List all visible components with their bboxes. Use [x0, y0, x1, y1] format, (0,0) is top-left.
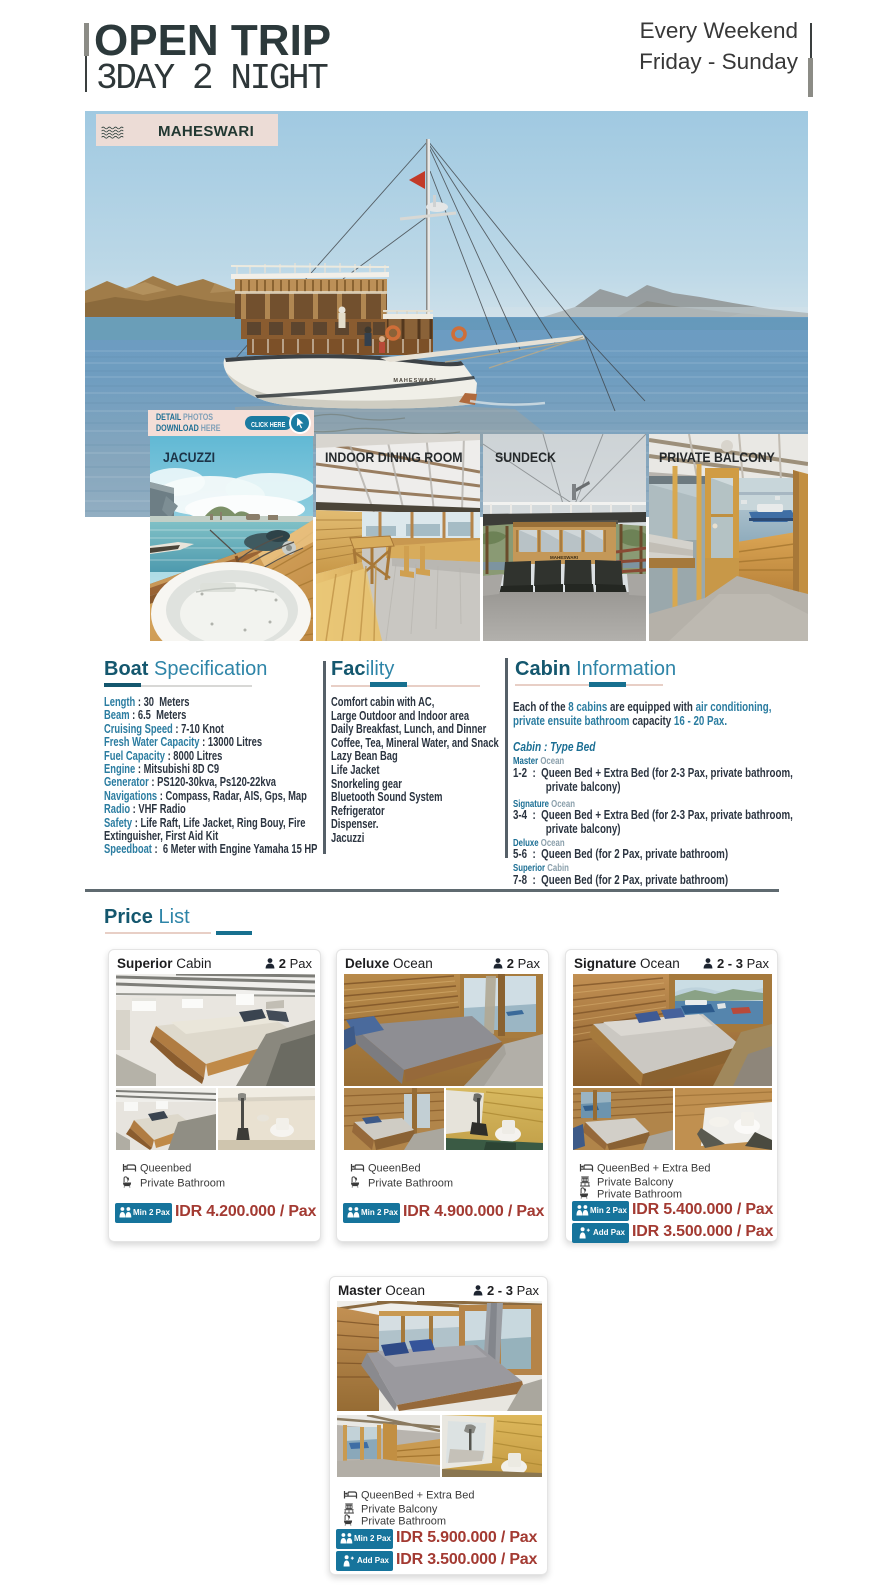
- svg-text:MAHESWARI: MAHESWARI: [550, 555, 578, 560]
- svg-text:MAHESWARI: MAHESWARI: [393, 378, 436, 384]
